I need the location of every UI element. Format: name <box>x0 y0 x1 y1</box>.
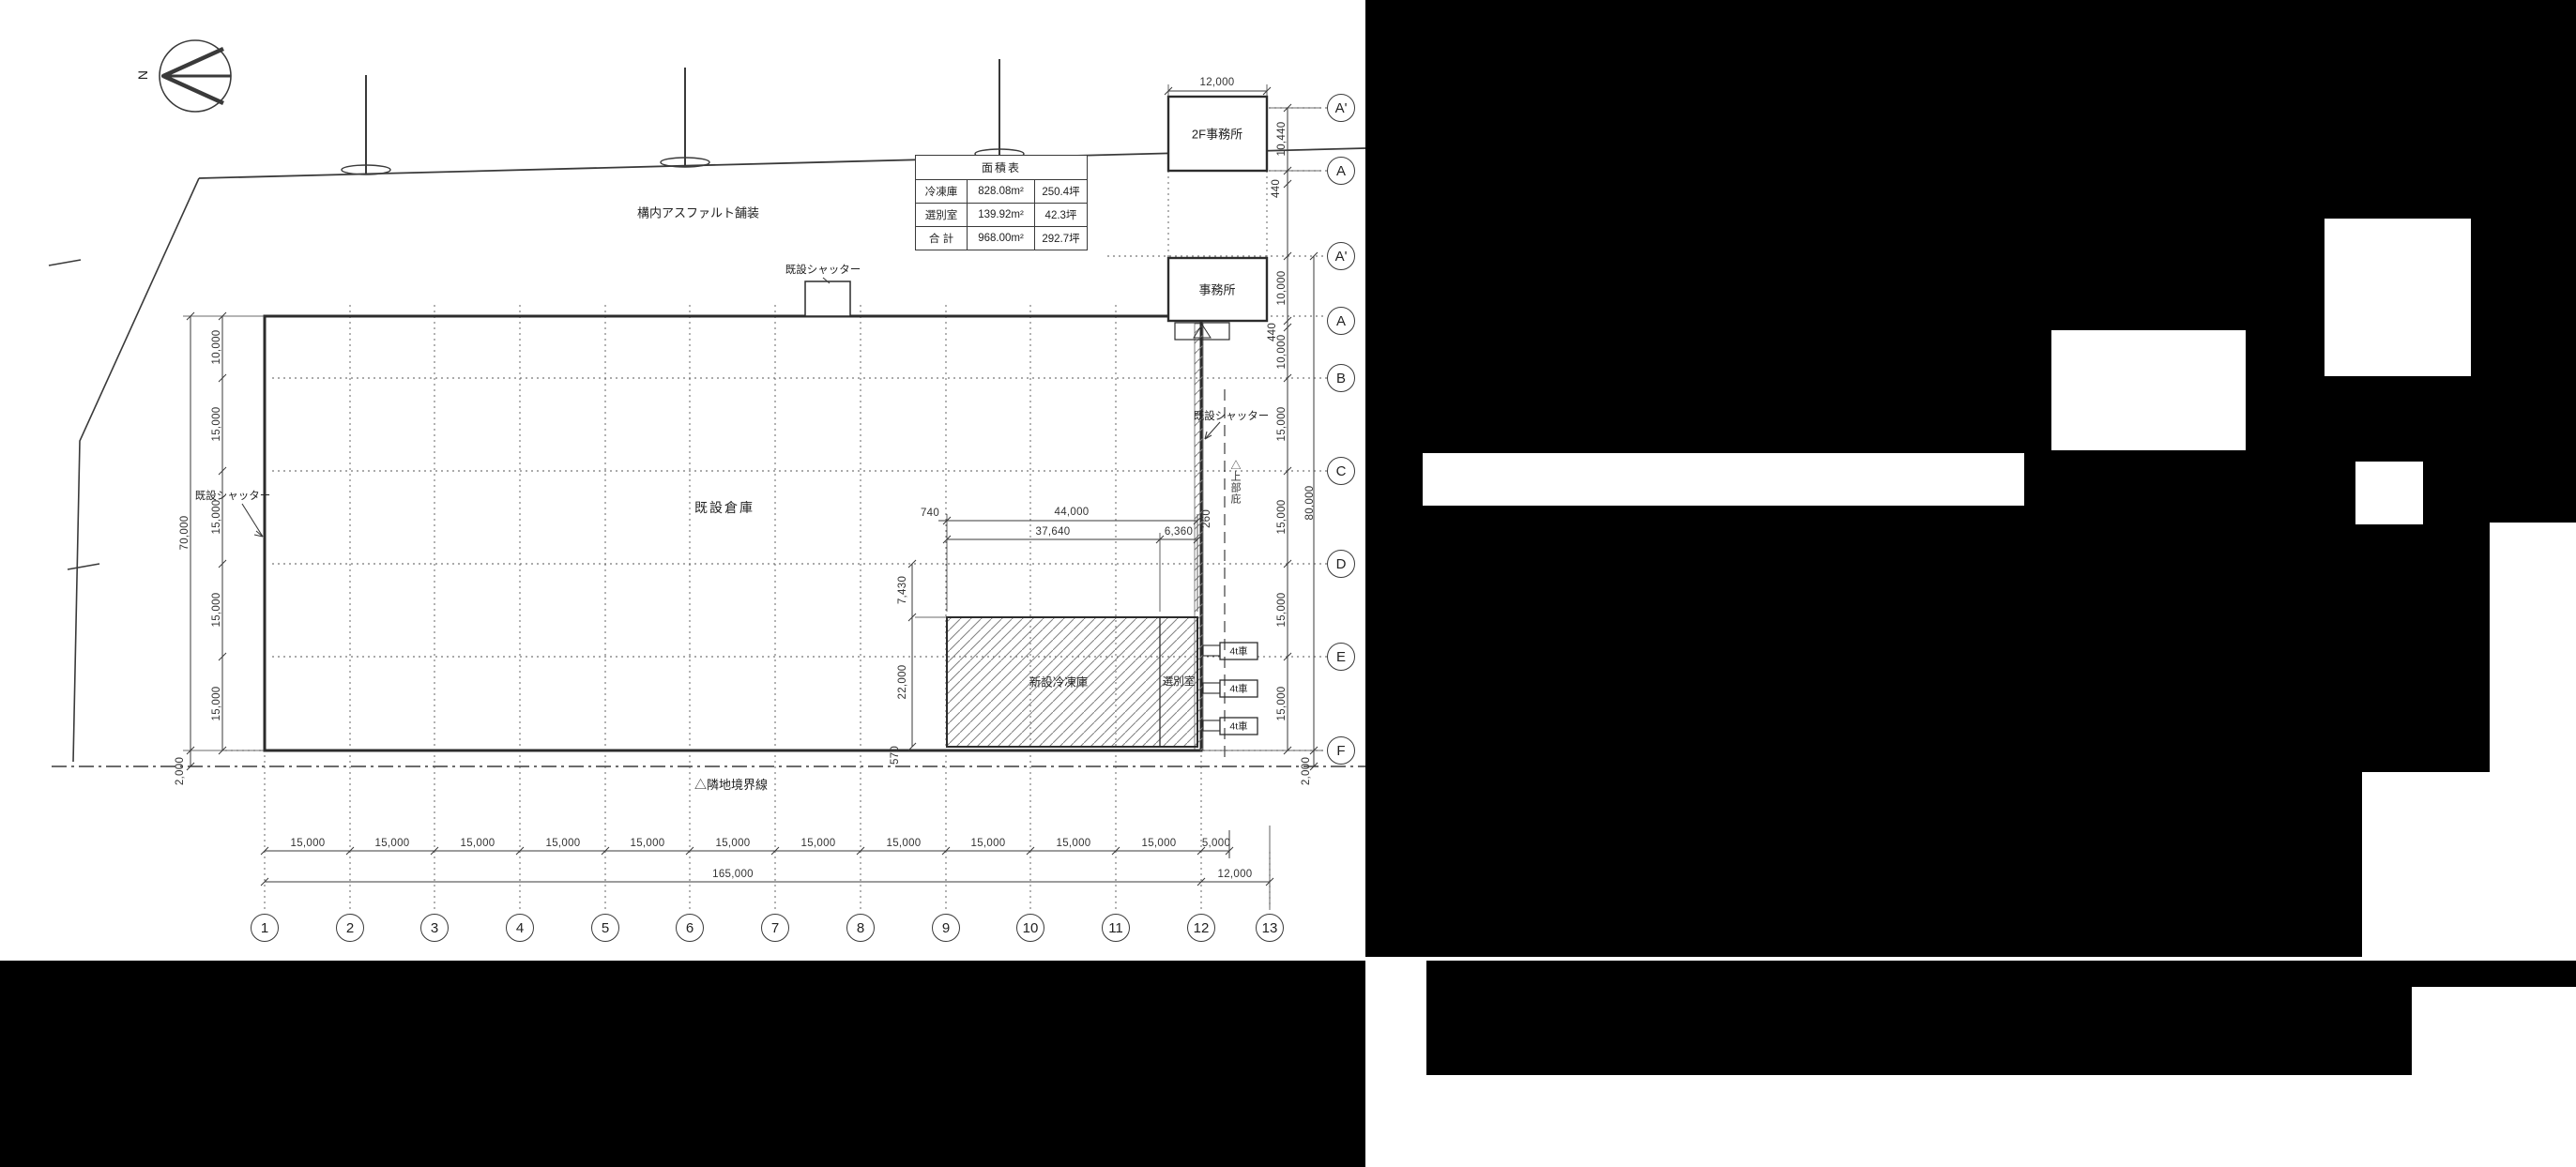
dim-7-8: 15,000 <box>801 838 836 849</box>
grid-col-10: 10 <box>1016 914 1044 942</box>
row-area: 139.92m² <box>968 204 1035 226</box>
dim-5-6: 15,000 <box>631 838 665 849</box>
dim-left-a-b: 10,000 <box>211 330 222 365</box>
grid-row-f: F <box>1327 736 1355 765</box>
grid-row-a1: A <box>1327 157 1355 185</box>
redaction-cutout-5 <box>2490 523 2576 957</box>
redaction-block-bottom-right <box>2412 961 2576 987</box>
row-tsubo: 42.3坪 <box>1035 204 1087 226</box>
site-plan-canvas: N 構内アスファルト舗装 既設シャッター 既設シャッター 既設シャッター 既設倉… <box>0 0 2576 1167</box>
grid-lines <box>225 108 1327 910</box>
grid-col-2: 2 <box>336 914 364 942</box>
north-arrow-icon <box>160 40 231 112</box>
dim-total-165000: 165,000 <box>712 869 754 880</box>
grid-col-9: 9 <box>932 914 960 942</box>
existing-shutter-label-left: 既設シャッター <box>195 488 271 503</box>
dim-left-offset: 2,000 <box>175 757 186 785</box>
dim-left-d-e: 15,000 <box>211 593 222 628</box>
new-freezer-label: 新設冷凍庫 <box>1029 673 1089 690</box>
truck-label-2: 4t車 <box>1229 682 1247 696</box>
grid-col-6: 6 <box>676 914 704 942</box>
grid-col-7: 7 <box>761 914 789 942</box>
dim-freezer-7430: 7,430 <box>897 576 908 604</box>
dim-right-d-e: 15,000 <box>1276 593 1288 628</box>
existing-shutter-label-right: 既設シャッター <box>1194 408 1270 423</box>
grid-row-e: E <box>1327 643 1355 671</box>
grid-row-a1-prime: A' <box>1327 94 1355 122</box>
dim-right-440a: 440 <box>1271 179 1282 198</box>
dim-right-a-b: 10,000 <box>1276 335 1288 370</box>
dim-right-c-d: 15,000 <box>1276 500 1288 535</box>
dim-12-x: 5,000 <box>1202 838 1230 849</box>
dim-9-10: 15,000 <box>971 838 1006 849</box>
redaction-cutout-6 <box>2362 772 2498 957</box>
dim-freezer-6360: 6,360 <box>1165 526 1193 538</box>
truck-label-1: 4t車 <box>1229 644 1247 659</box>
dim-freezer-260: 260 <box>1201 509 1212 528</box>
grid-row-d: D <box>1327 550 1355 578</box>
grid-col-3: 3 <box>420 914 449 942</box>
dim-left-b-c: 15,000 <box>211 407 222 442</box>
dim-8-9: 15,000 <box>887 838 922 849</box>
area-table: 面積表 冷凍庫 828.08m² 250.4坪 選別室 139.92m² 42.… <box>915 155 1088 250</box>
row-tsubo: 250.4坪 <box>1035 180 1087 203</box>
dim-freezer-22000: 22,000 <box>897 665 908 700</box>
grid-col-4: 4 <box>506 914 534 942</box>
dim-freezer-740: 740 <box>921 508 939 519</box>
dim-left-e-f: 15,000 <box>211 687 222 721</box>
redaction-block-bottom-mid <box>1426 961 2412 1075</box>
row-area: 968.00m² <box>968 227 1035 250</box>
dim-1-2: 15,000 <box>291 838 326 849</box>
office-2f-label: 2F事務所 <box>1192 125 1242 143</box>
grid-col-11: 11 <box>1102 914 1130 942</box>
redaction-cutout-4 <box>2355 462 2423 524</box>
dim-office-width: 12,000 <box>1200 77 1235 88</box>
grid-col-12: 12 <box>1187 914 1215 942</box>
dim-right-10440: 10,440 <box>1276 122 1288 157</box>
grid-row-a2-prime: A' <box>1327 242 1355 270</box>
dim-4-5: 15,000 <box>546 838 581 849</box>
truck-label-3: 4t車 <box>1229 720 1247 734</box>
dim-10-11: 15,000 <box>1057 838 1091 849</box>
office-label: 事務所 <box>1198 280 1235 298</box>
row-name: 冷凍庫 <box>916 180 968 203</box>
dim-2-3: 15,000 <box>375 838 410 849</box>
dim-12-13: 12,000 <box>1218 869 1253 880</box>
dim-right-b-c: 15,000 <box>1276 407 1288 442</box>
dim-left-c-d: 15,000 <box>211 500 222 535</box>
boundary-line-label: △隣地境界線 <box>694 775 768 793</box>
dim-right-total: 80,000 <box>1304 486 1316 521</box>
dim-freezer-570: 570 <box>890 746 901 765</box>
grid-row-c: C <box>1327 457 1355 485</box>
dim-freezer-44000: 44,000 <box>1055 507 1090 518</box>
grid-col-1: 1 <box>251 914 279 942</box>
row-name: 選別室 <box>916 204 968 226</box>
grid-col-5: 5 <box>591 914 619 942</box>
dim-right-offset: 2,000 <box>1301 757 1312 785</box>
sorting-room-label: 選別室 <box>1163 674 1196 689</box>
area-table-title: 面積表 <box>916 156 1087 179</box>
grid-col-8: 8 <box>846 914 875 942</box>
row-area: 828.08m² <box>968 180 1035 203</box>
row-tsubo: 292.7坪 <box>1035 227 1087 250</box>
redaction-cutout-1 <box>2324 219 2471 376</box>
grid-row-b: B <box>1327 364 1355 392</box>
dim-freezer-37640: 37,640 <box>1036 526 1071 538</box>
redaction-cutout-2 <box>2051 330 2246 450</box>
row-name: 合 計 <box>916 227 968 250</box>
dim-11-12: 15,000 <box>1142 838 1177 849</box>
existing-warehouse-label: 既設倉庫 <box>694 498 755 517</box>
dim-right-10000-office: 10,000 <box>1276 271 1288 306</box>
dim-3-4: 15,000 <box>461 838 495 849</box>
truck-icons <box>1203 389 1258 762</box>
table-row: 合 計 968.00m² 292.7坪 <box>916 226 1087 250</box>
north-label: N <box>135 70 150 80</box>
redaction-cutout-3 <box>1423 453 2024 506</box>
dim-right-e-f: 15,000 <box>1276 687 1288 721</box>
table-row: 選別室 139.92m² 42.3坪 <box>916 203 1087 226</box>
redaction-block-bottom-left <box>0 961 1365 1167</box>
canopy-label: △上部庇 <box>1227 460 1242 505</box>
grid-col-13: 13 <box>1256 914 1284 942</box>
dim-left-total: 70,000 <box>179 516 191 551</box>
asphalt-label: 構内アスファルト舗装 <box>637 204 759 221</box>
existing-shutter-label-top: 既設シャッター <box>785 262 861 277</box>
table-row: 冷凍庫 828.08m² 250.4坪 <box>916 179 1087 203</box>
grid-row-a2: A <box>1327 307 1355 335</box>
dim-6-7: 15,000 <box>716 838 751 849</box>
